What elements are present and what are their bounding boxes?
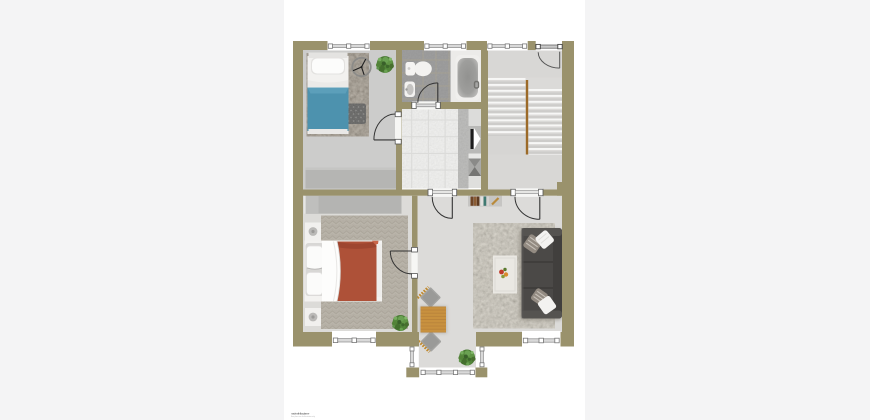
- svg-text:made with floorplanner: made with floorplanner: [291, 411, 310, 415]
- svg-text:floor plans are for illustrati: floor plans are for illustration only: [291, 415, 315, 418]
